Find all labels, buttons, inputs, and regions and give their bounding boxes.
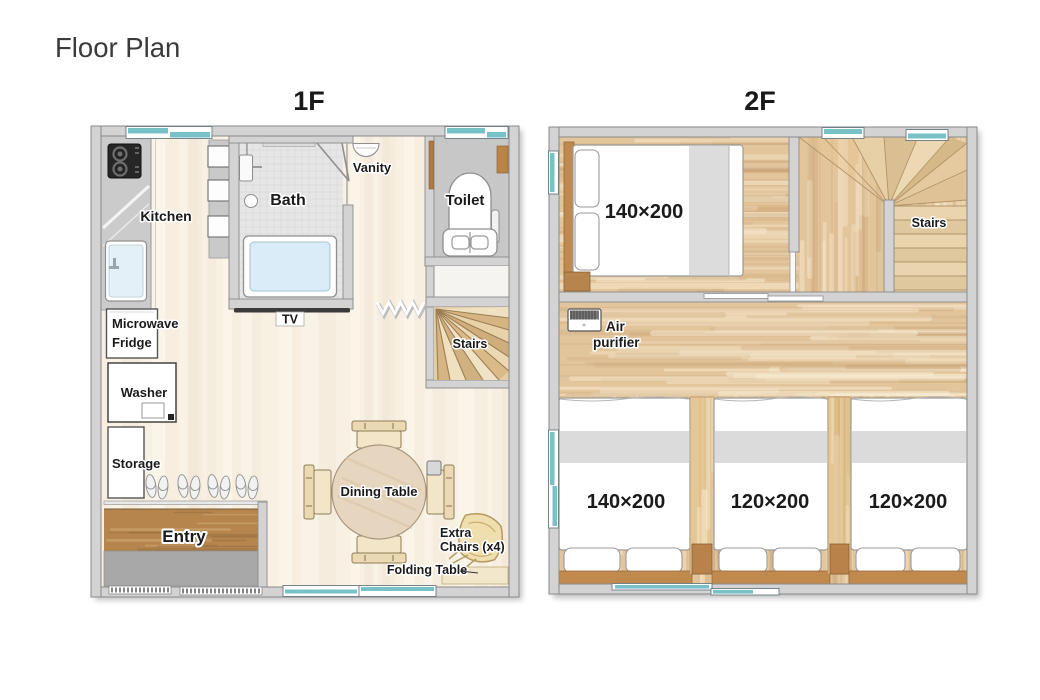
- svg-text:Folding Table: Folding Table: [387, 563, 467, 577]
- svg-text:140×200: 140×200: [605, 201, 683, 223]
- svg-text:Floor Plan: Floor Plan: [55, 32, 180, 63]
- svg-text:purifier: purifier: [593, 335, 640, 350]
- svg-text:120×200: 120×200: [869, 491, 947, 513]
- svg-text:Kitchen: Kitchen: [140, 208, 191, 224]
- svg-text:Chairs (x4): Chairs (x4): [440, 540, 505, 554]
- svg-text:2F: 2F: [744, 86, 776, 116]
- svg-text:Stairs: Stairs: [912, 216, 947, 230]
- svg-text:TV: TV: [282, 313, 299, 327]
- svg-text:1F: 1F: [293, 86, 325, 116]
- svg-text:Extra: Extra: [440, 526, 472, 540]
- svg-text:Washer: Washer: [121, 385, 167, 400]
- svg-text:Storage: Storage: [112, 456, 160, 471]
- svg-text:Air: Air: [606, 319, 626, 334]
- svg-text:Vanity: Vanity: [353, 160, 392, 175]
- svg-text:Stairs: Stairs: [453, 337, 488, 351]
- svg-text:Dining Table: Dining Table: [340, 484, 417, 499]
- svg-text:Entry: Entry: [162, 527, 206, 546]
- svg-text:Microwave: Microwave: [112, 316, 178, 331]
- svg-text:140×200: 140×200: [587, 491, 665, 513]
- svg-text:Bath: Bath: [270, 192, 306, 209]
- svg-text:Fridge: Fridge: [112, 335, 152, 350]
- svg-text:Toilet: Toilet: [446, 192, 485, 209]
- svg-text:120×200: 120×200: [731, 491, 809, 513]
